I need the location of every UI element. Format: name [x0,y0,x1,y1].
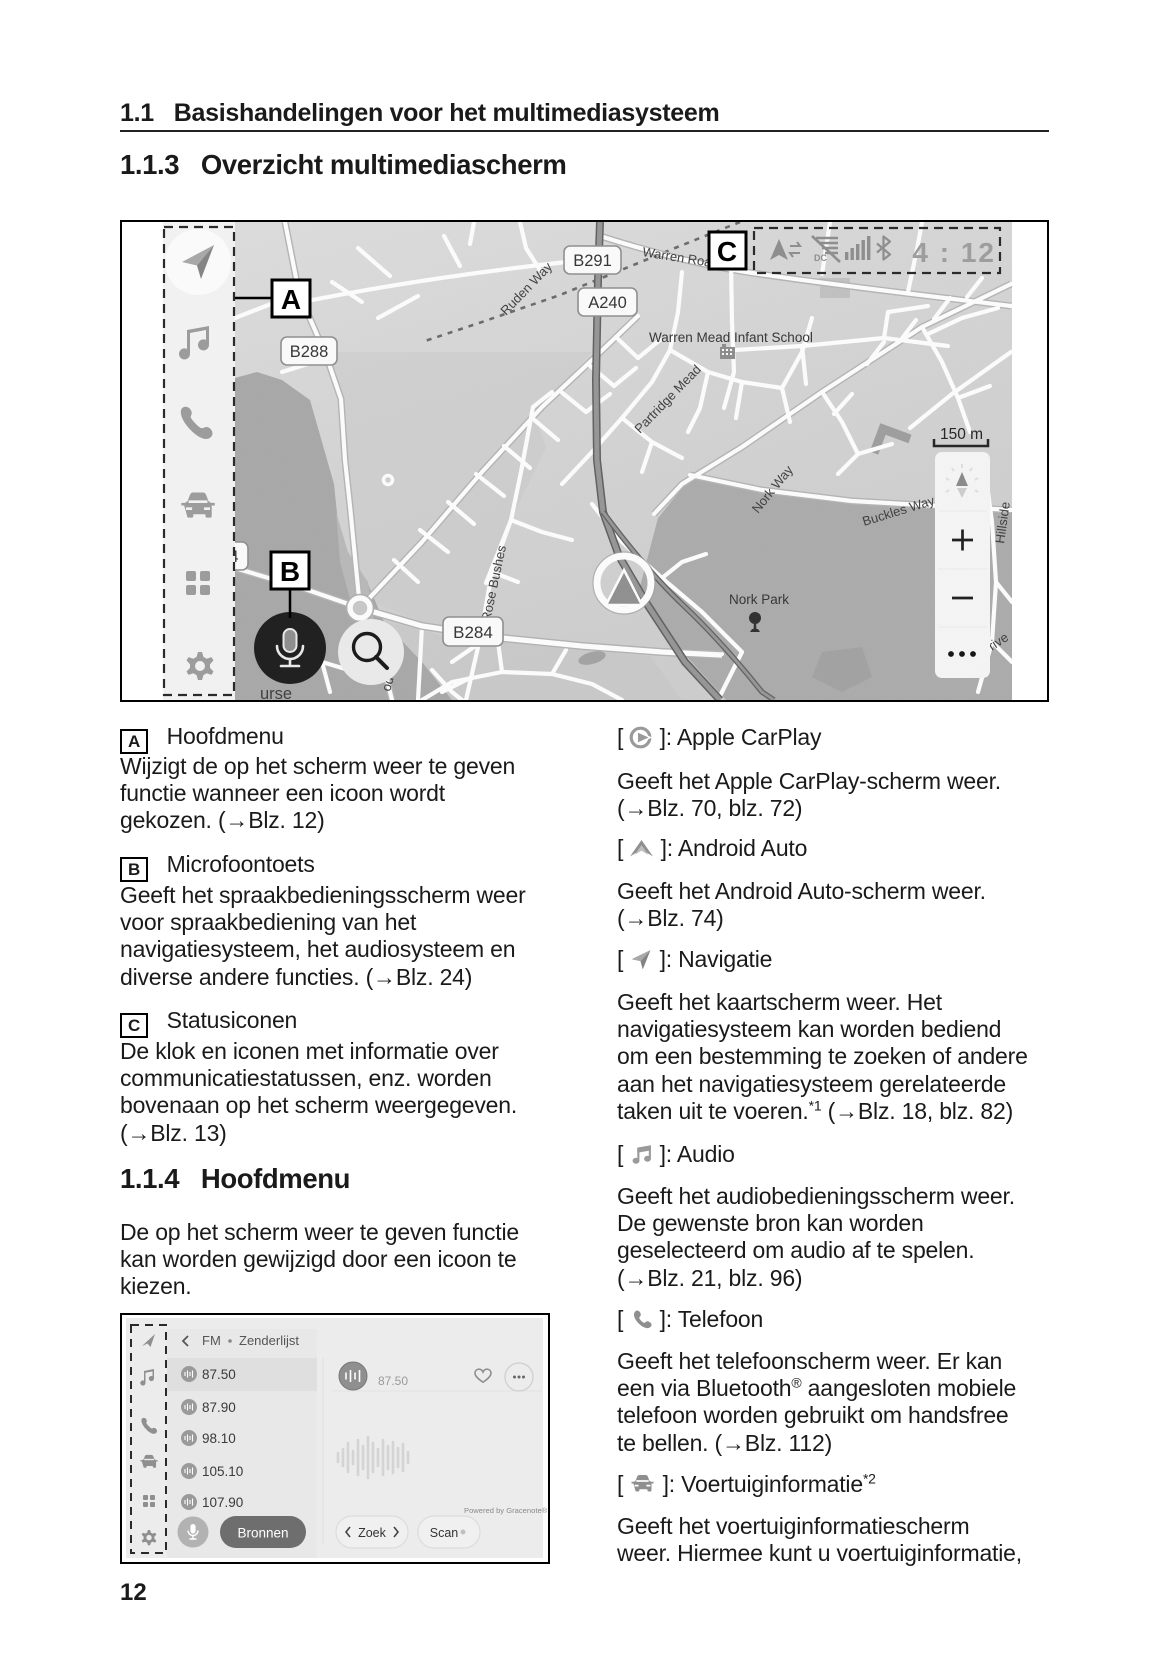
svg-text:B: B [280,556,300,587]
svg-text:Zoek: Zoek [358,1526,387,1540]
svg-text:FM: FM [202,1333,221,1348]
svg-text:105.10: 105.10 [202,1464,243,1479]
svg-text:Zenderlijst: Zenderlijst [239,1333,299,1348]
svg-text:4 : 12: 4 : 12 [912,237,996,268]
svg-text:Bronnen: Bronnen [237,1526,288,1541]
svg-text:Scan: Scan [430,1526,459,1540]
svg-text:87.50: 87.50 [378,1374,408,1388]
svg-text:107.90: 107.90 [202,1495,243,1510]
svg-text:C: C [717,236,737,267]
svg-text:Powered by Gracenote®: Powered by Gracenote® [464,1506,548,1515]
svg-text:87.90: 87.90 [202,1400,236,1415]
svg-text:98.10: 98.10 [202,1431,236,1446]
svg-text:DC: DC [814,253,827,263]
svg-text:A: A [281,284,301,315]
svg-text:87.50: 87.50 [202,1367,236,1382]
